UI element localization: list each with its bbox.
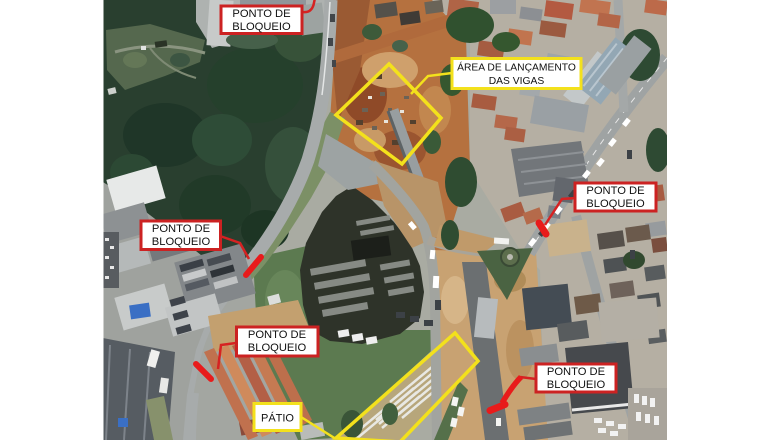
- svg-text:BLOQUEIO: BLOQUEIO: [232, 21, 291, 33]
- svg-text:BLOQUEIO: BLOQUEIO: [586, 198, 645, 210]
- svg-text:ÁREA DE LANÇAMENTO: ÁREA DE LANÇAMENTO: [457, 61, 576, 74]
- svg-text:PONTO DE: PONTO DE: [248, 329, 306, 341]
- svg-text:BLOQUEIO: BLOQUEIO: [547, 379, 606, 391]
- svg-text:PONTO DE: PONTO DE: [152, 223, 210, 235]
- svg-text:BLOQUEIO: BLOQUEIO: [152, 236, 211, 248]
- svg-text:PONTO DE: PONTO DE: [586, 185, 644, 197]
- svg-text:PONTO DE: PONTO DE: [547, 366, 605, 378]
- svg-text:PONTO DE: PONTO DE: [232, 8, 290, 20]
- svg-text:BLOQUEIO: BLOQUEIO: [248, 342, 307, 354]
- svg-text:PÁTIO: PÁTIO: [261, 412, 294, 425]
- svg-text:DAS VIGAS: DAS VIGAS: [489, 76, 545, 87]
